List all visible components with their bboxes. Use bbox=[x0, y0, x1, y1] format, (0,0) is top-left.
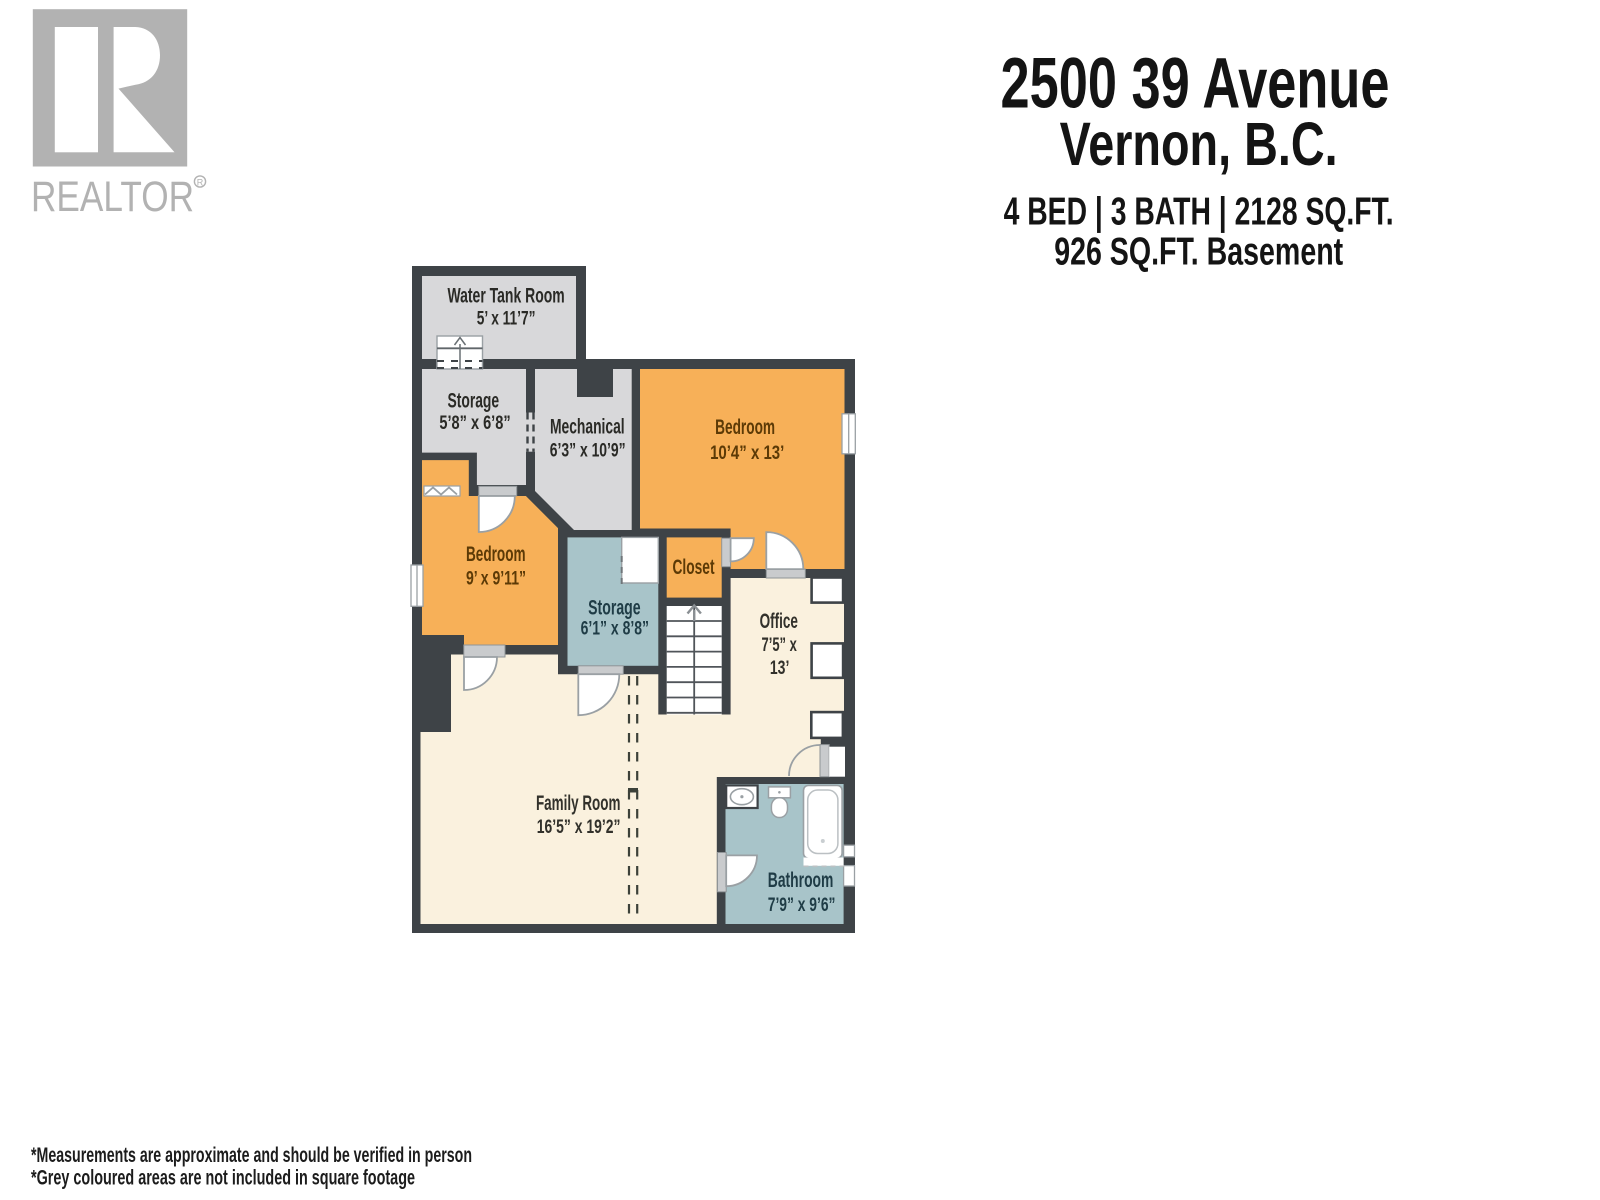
svg-text:16’5” x 19’2”: 16’5” x 19’2” bbox=[537, 817, 621, 838]
svg-text:7’5” x: 7’5” x bbox=[762, 635, 798, 656]
svg-text:R: R bbox=[197, 177, 204, 187]
svg-text:4 BED | 3 BATH | 2128 SQ.FT.: 4 BED | 3 BATH | 2128 SQ.FT. bbox=[1004, 191, 1394, 234]
svg-text:5’ x 11’7”: 5’ x 11’7” bbox=[477, 309, 536, 330]
svg-text:Family Room: Family Room bbox=[536, 792, 621, 815]
svg-text:10’4” x 13’: 10’4” x 13’ bbox=[710, 443, 784, 464]
svg-text:6’3” x 10’9”: 6’3” x 10’9” bbox=[550, 441, 626, 462]
svg-text:9’ x 9’11”: 9’ x 9’11” bbox=[466, 569, 526, 590]
svg-text:*Grey coloured areas are not i: *Grey coloured areas are not included in… bbox=[31, 1166, 415, 1190]
svg-text:926 SQ.FT. Basement: 926 SQ.FT. Basement bbox=[1054, 231, 1343, 274]
svg-text:Closet: Closet bbox=[672, 556, 714, 579]
svg-text:6’1” x 8’8”: 6’1” x 8’8” bbox=[581, 619, 649, 640]
svg-text:REALTOR: REALTOR bbox=[31, 173, 194, 221]
svg-text:Water Tank Room: Water Tank Room bbox=[447, 284, 564, 307]
svg-text:*Measurements are approximate: *Measurements are approximate and should… bbox=[31, 1143, 472, 1167]
svg-text:13’: 13’ bbox=[770, 658, 790, 679]
svg-text:7’9” x 9’6”: 7’9” x 9’6” bbox=[768, 895, 836, 916]
svg-text:Storage: Storage bbox=[448, 390, 500, 413]
svg-text:Bedroom: Bedroom bbox=[466, 543, 526, 566]
svg-text:Bedroom: Bedroom bbox=[715, 416, 775, 439]
svg-text:Mechanical: Mechanical bbox=[550, 416, 625, 439]
svg-text:Office: Office bbox=[760, 610, 798, 633]
svg-text:Vernon, B.C.: Vernon, B.C. bbox=[1060, 110, 1338, 179]
svg-text:5’8” x 6’8”: 5’8” x 6’8” bbox=[439, 413, 510, 434]
svg-text:Bathroom: Bathroom bbox=[768, 869, 834, 892]
svg-text:Storage: Storage bbox=[588, 597, 641, 620]
